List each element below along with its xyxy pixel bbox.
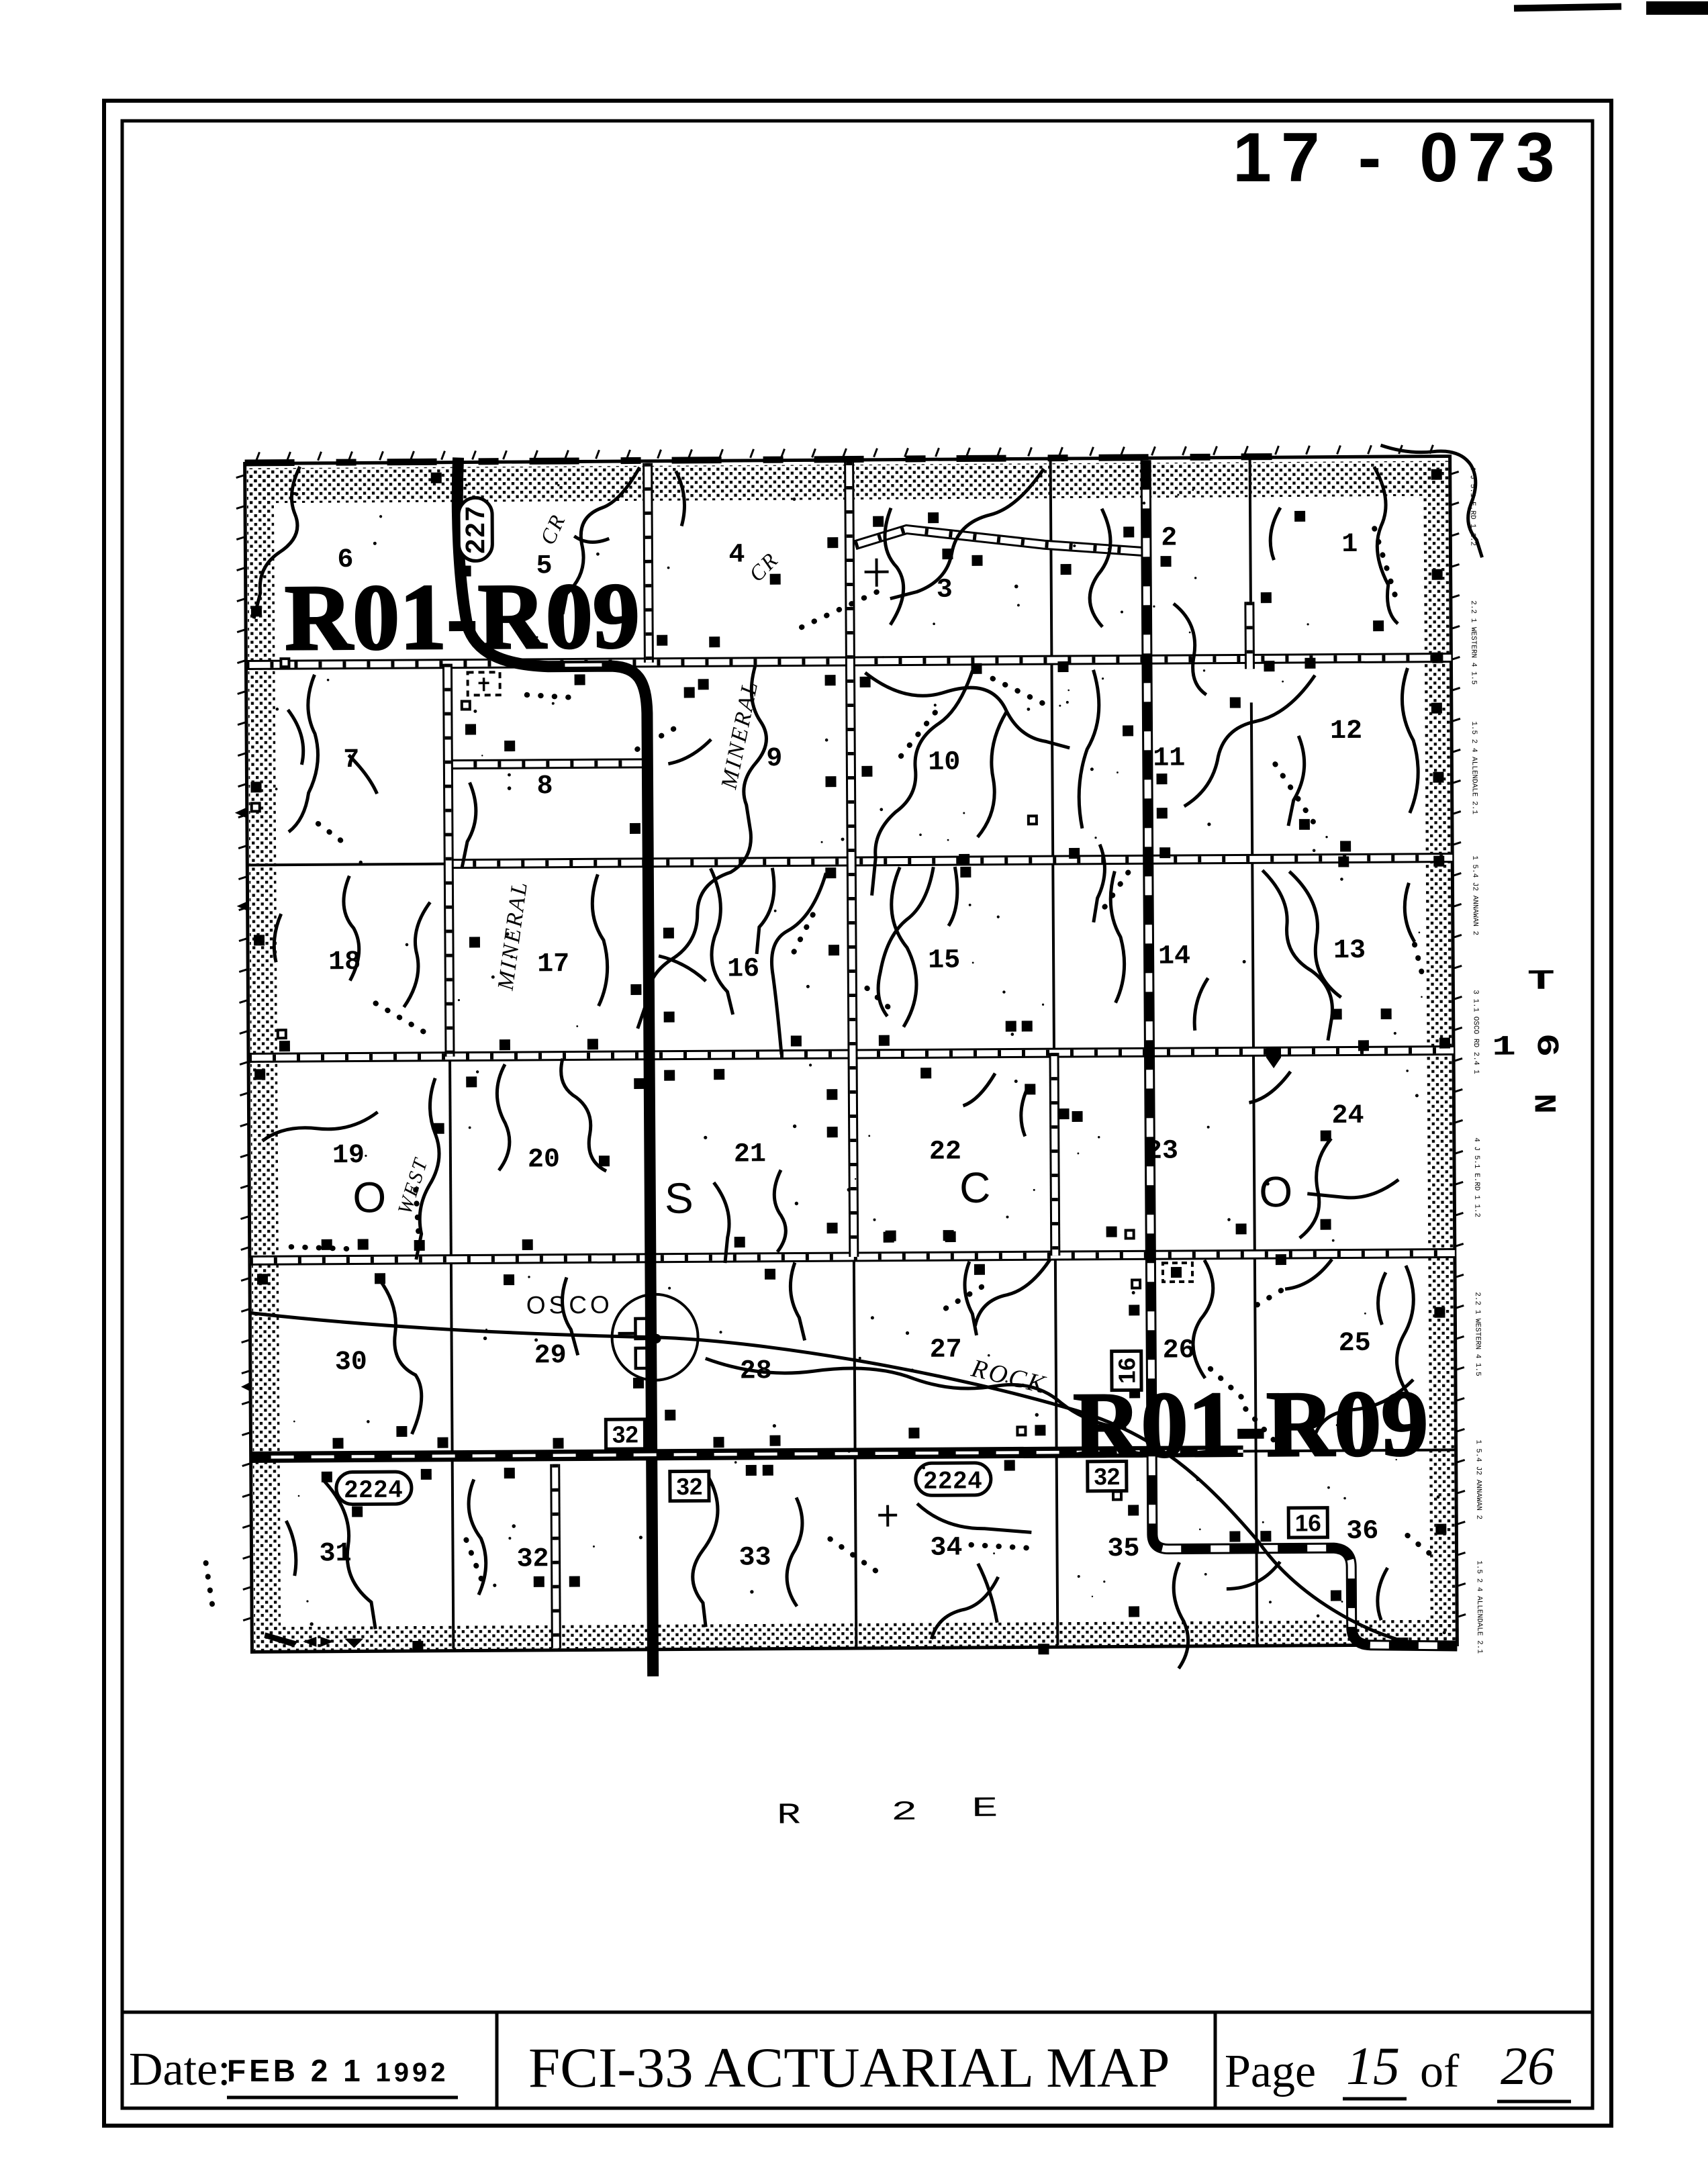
svg-text:19: 19: [332, 1141, 365, 1171]
svg-text:13: 13: [1333, 936, 1366, 966]
svg-text:31: 31: [319, 1539, 351, 1569]
svg-text:2.2 1 WESTERN 4 1.5: 2.2 1 WESTERN 4 1.5: [1473, 1292, 1482, 1376]
svg-text:C: C: [959, 1164, 991, 1212]
svg-text:R: R: [777, 1798, 801, 1832]
svg-text:3: 3: [937, 575, 953, 606]
svg-text:16: 16: [1295, 1510, 1321, 1536]
svg-text:23: 23: [1146, 1137, 1178, 1167]
svg-text:Date:: Date:: [129, 2044, 231, 2095]
svg-text:2: 2: [1161, 524, 1177, 554]
svg-text:4 J 5.1 E.RD 1 1.2: 4 J 5.1 E.RD 1 1.2: [1472, 1137, 1481, 1217]
svg-text:FCI-33 ACTUARIAL MAP: FCI-33 ACTUARIAL MAP: [528, 2036, 1170, 2099]
svg-text:R01-R09: R01-R09: [285, 564, 640, 670]
svg-text:32: 32: [676, 1474, 702, 1500]
svg-text:26: 26: [1163, 1335, 1195, 1366]
svg-text:18: 18: [328, 947, 361, 978]
svg-text:15: 15: [928, 946, 960, 976]
svg-text:of: of: [1420, 2046, 1460, 2097]
svg-text:15: 15: [1346, 2037, 1400, 2096]
svg-text:2: 2: [891, 1797, 918, 1828]
svg-text:10: 10: [928, 747, 960, 777]
svg-text:9: 9: [766, 744, 782, 774]
svg-text:20: 20: [528, 1145, 560, 1175]
svg-text:OSCO: OSCO: [526, 1291, 613, 1319]
svg-text:30: 30: [335, 1347, 367, 1378]
svg-text:29: 29: [534, 1341, 567, 1371]
svg-text:17 - 073: 17 - 073: [1233, 119, 1564, 197]
svg-text:1 5.4 J2 ANNAWAN 2: 1 5.4 J2 ANNAWAN 2: [1474, 1439, 1483, 1519]
svg-text:6: 6: [1529, 1033, 1564, 1057]
svg-text:227: 227: [461, 505, 490, 554]
svg-text:11: 11: [1153, 743, 1185, 773]
svg-text:24: 24: [1331, 1101, 1364, 1131]
svg-text:34: 34: [930, 1533, 962, 1563]
svg-text:16: 16: [727, 954, 759, 984]
svg-text:35: 35: [1107, 1534, 1139, 1564]
svg-text:26: 26: [1501, 2037, 1554, 2096]
svg-text:Page: Page: [1225, 2046, 1316, 2097]
svg-text:22: 22: [929, 1137, 961, 1167]
svg-text:33: 33: [739, 1543, 771, 1573]
svg-text:4: 4: [728, 540, 745, 570]
svg-text:2224: 2224: [344, 1475, 404, 1503]
svg-text:O: O: [1259, 1168, 1292, 1216]
svg-text:FEB 2 1 1992: FEB 2 1 1992: [227, 2053, 449, 2088]
svg-text:O: O: [352, 1173, 386, 1221]
svg-text:36: 36: [1346, 1517, 1378, 1547]
svg-text:2224: 2224: [924, 1466, 983, 1494]
svg-text:S: S: [665, 1174, 694, 1222]
svg-text:32: 32: [516, 1544, 549, 1574]
svg-text:1: 1: [1492, 1031, 1516, 1063]
svg-text:14: 14: [1158, 941, 1190, 972]
svg-text:1 5.4 J2 ANNAWAN 2: 1 5.4 J2 ANNAWAN 2: [1470, 855, 1479, 935]
svg-text:E: E: [971, 1793, 998, 1825]
svg-text:1: 1: [1341, 530, 1358, 560]
svg-text:28: 28: [740, 1356, 772, 1386]
svg-text:12: 12: [1330, 716, 1362, 747]
svg-text:17: 17: [537, 949, 569, 980]
svg-text:1.5 2 4 ALLENDALE 2.1: 1.5 2 4 ALLENDALE 2.1: [1470, 721, 1478, 814]
svg-text:R01-R09: R01-R09: [1073, 1372, 1429, 1478]
svg-text:3 1.1 OSCO RD 2.4 1: 3 1.1 OSCO RD 2.4 1: [1471, 990, 1480, 1074]
svg-text:8: 8: [536, 771, 553, 802]
svg-text:27: 27: [930, 1335, 962, 1365]
svg-text:2.2 1 WESTERN 4 1.5: 2.2 1 WESTERN 4 1.5: [1469, 600, 1478, 684]
svg-text:1.5 2 4 ALLENDALE 2.1: 1.5 2 4 ALLENDALE 2.1: [1475, 1560, 1484, 1654]
svg-text:21: 21: [734, 1139, 766, 1170]
svg-text:7: 7: [343, 745, 359, 775]
svg-text:N: N: [1525, 1093, 1561, 1114]
svg-text:32: 32: [612, 1421, 638, 1448]
svg-text:25: 25: [1339, 1329, 1371, 1359]
svg-text:T: T: [1527, 965, 1555, 998]
